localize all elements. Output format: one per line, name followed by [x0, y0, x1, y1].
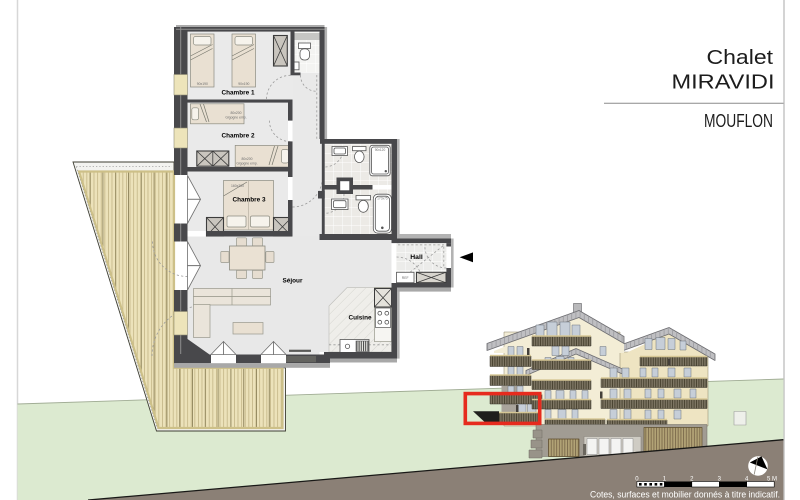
svg-text:Cotes, surfaces et mobilier do: Cotes, surfaces et mobilier donnés à tit… — [590, 490, 780, 500]
svg-text:Hall: Hall — [410, 254, 423, 261]
svg-text:90x120: 90x120 — [375, 148, 386, 152]
svg-text:Chambre 1: Chambre 1 — [221, 89, 254, 96]
svg-text:Séjour: Séjour — [283, 277, 303, 284]
svg-text:REF: REF — [402, 276, 409, 280]
svg-text:80x200: 80x200 — [230, 111, 241, 115]
svg-text:5 M: 5 M — [767, 477, 777, 483]
svg-text:Gigogne emp.: Gigogne emp. — [236, 161, 257, 165]
svg-text:90x190: 90x190 — [197, 82, 208, 86]
svg-text:Cuisine: Cuisine — [348, 314, 372, 321]
svg-text:MIRAVIDI: MIRAVIDI — [672, 72, 775, 94]
svg-text:170x75: 170x75 — [377, 196, 388, 200]
svg-text:160x200: 160x200 — [231, 184, 244, 188]
svg-text:80x200: 80x200 — [241, 157, 252, 161]
svg-text:90x190: 90x190 — [238, 82, 249, 86]
svg-text:Gigogne emp.: Gigogne emp. — [225, 115, 246, 119]
svg-text:Chalet: Chalet — [707, 47, 774, 69]
svg-text:Chambre 2: Chambre 2 — [221, 132, 254, 139]
svg-text:MOUFLON: MOUFLON — [704, 111, 773, 131]
svg-text:Chambre 3: Chambre 3 — [232, 196, 265, 203]
